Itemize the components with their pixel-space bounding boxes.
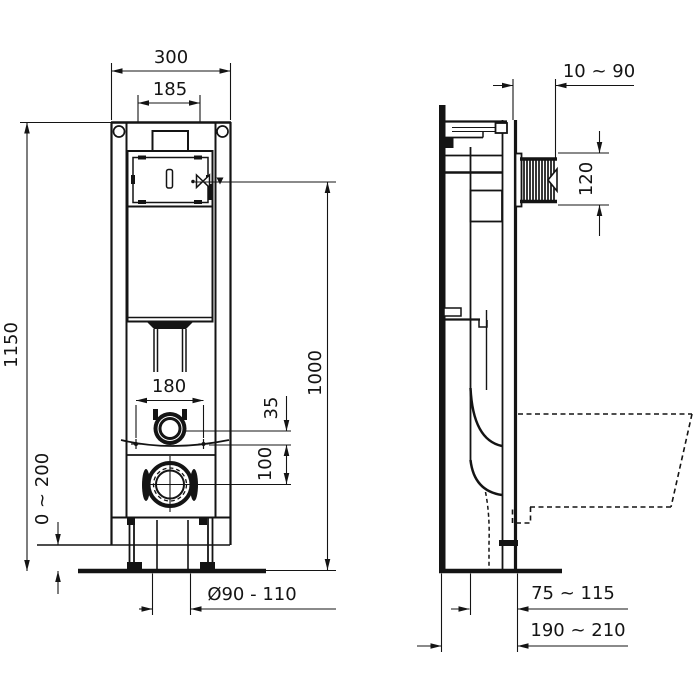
dim-flush-bend-height: 120 bbox=[578, 162, 596, 196]
side-view-toilet-bowl-outline bbox=[513, 414, 693, 523]
dim-flush-line-height: 1000 bbox=[307, 350, 325, 396]
dim-overall-width: 300 bbox=[154, 49, 188, 67]
front-view-flush-bend bbox=[121, 409, 229, 455]
side-view-frame bbox=[439, 105, 562, 571]
side-view-flush-pipe bbox=[516, 154, 558, 207]
dim-drain-center-depth: 75 ~ 115 bbox=[531, 585, 615, 603]
dim-tank-width: 185 bbox=[153, 81, 187, 99]
side-view-dimensions bbox=[417, 79, 634, 652]
dim-wall-clearance: 10 ~ 90 bbox=[563, 63, 635, 81]
dim-frame-depth: 190 ~ 210 bbox=[530, 622, 625, 640]
dim-drain-offset: 100 bbox=[257, 447, 275, 481]
side-view-cistern bbox=[446, 147, 503, 570]
dim-flush-pipe-offset: 35 bbox=[263, 397, 281, 420]
technical-drawing-page: 300 185 1150 1000 180 35 100 0 ~ 200 Ø90… bbox=[0, 0, 700, 700]
dim-leg-adjustment: 0 ~ 200 bbox=[34, 453, 52, 525]
front-view-cistern bbox=[128, 131, 224, 372]
dim-bolt-spacing: 180 bbox=[152, 378, 186, 396]
dim-drain-diameter: Ø90 - 110 bbox=[207, 586, 296, 604]
dim-overall-height: 1150 bbox=[3, 322, 21, 368]
